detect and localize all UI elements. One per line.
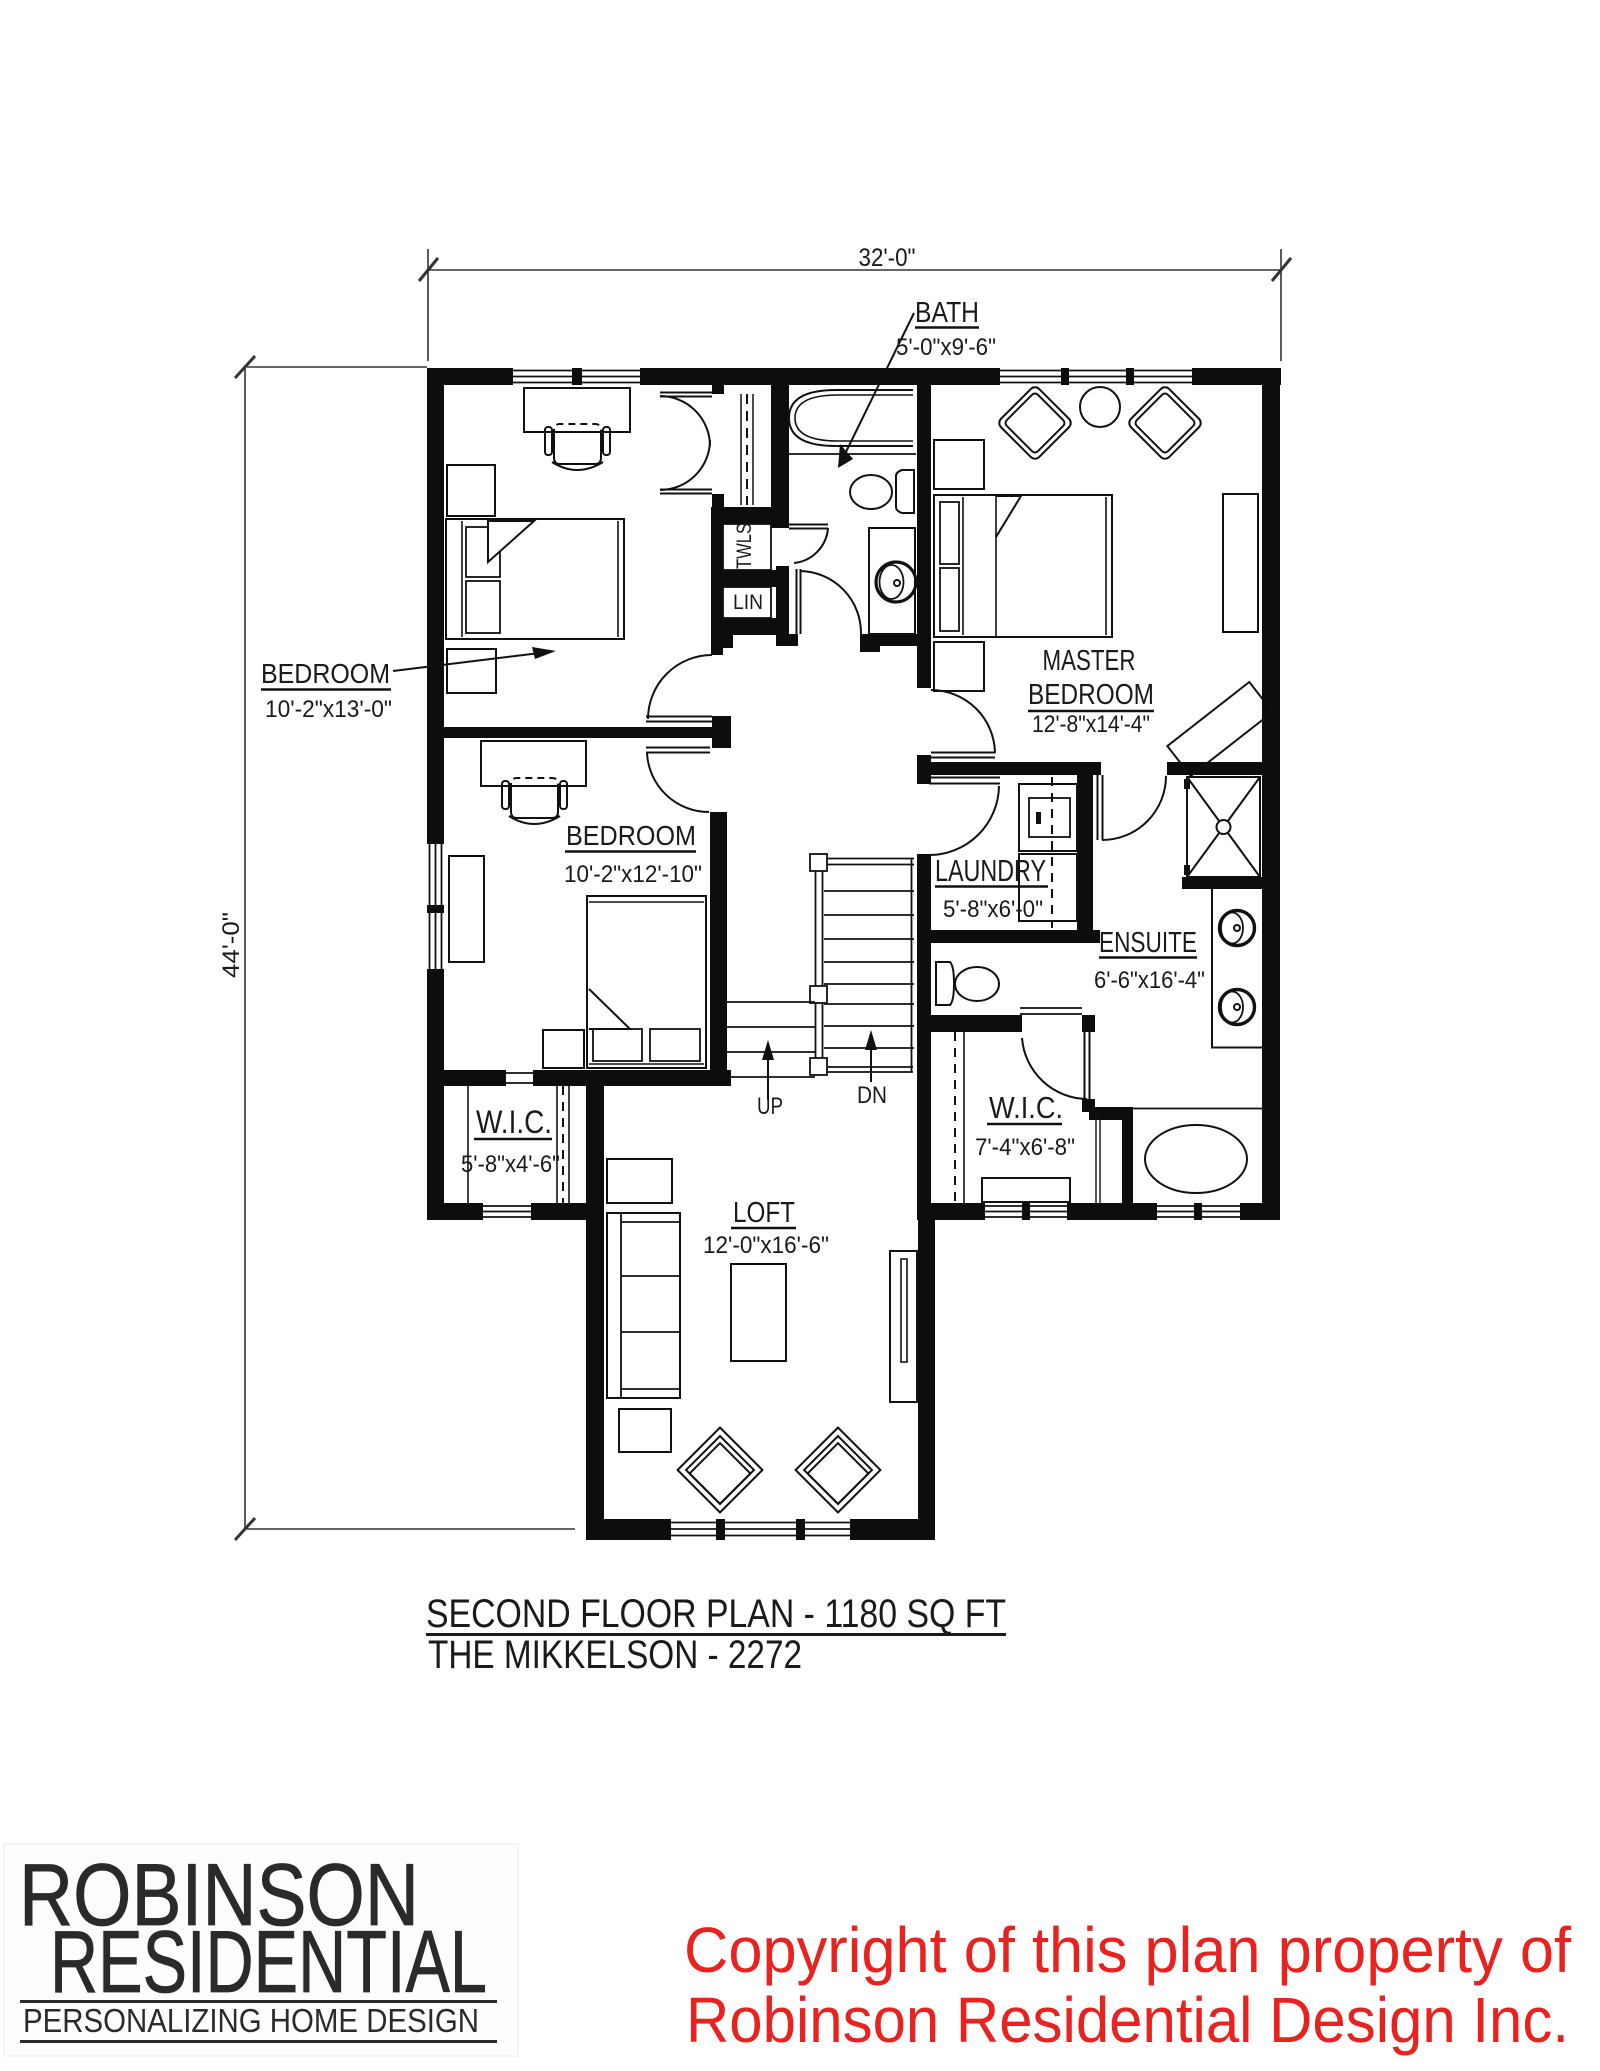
svg-text:BATH: BATH [915,297,979,329]
svg-text:PERSONALIZING HOME DESIGN: PERSONALIZING HOME DESIGN [23,2003,479,2040]
svg-text:TWLS: TWLS [733,523,756,569]
svg-text:W.I.C.: W.I.C. [476,1104,552,1140]
svg-text:BEDROOM: BEDROOM [261,658,390,689]
svg-text:5'-0"x9'-6": 5'-0"x9'-6" [896,334,996,361]
svg-text:SECOND FLOOR PLAN - 1180 SQ FT: SECOND FLOOR PLAN - 1180 SQ FT [426,1592,1006,1636]
svg-text:Copyright of this plan propert: Copyright of this plan property of [684,1914,1571,1986]
svg-text:12'-0"x16'-6": 12'-0"x16'-6" [703,1232,829,1259]
svg-text:12'-8"x14'-4": 12'-8"x14'-4" [1032,711,1150,738]
svg-text:W.I.C.: W.I.C. [989,1090,1063,1125]
svg-text:10'-2"x13'-0": 10'-2"x13'-0" [265,696,392,723]
svg-text:7'-4"x6'-8": 7'-4"x6'-8" [975,1134,1075,1161]
svg-text:5'-8"x4'-6": 5'-8"x4'-6" [461,1151,560,1178]
svg-text:BEDROOM: BEDROOM [1028,679,1154,711]
svg-text:LOFT: LOFT [733,1197,795,1229]
svg-text:BEDROOM: BEDROOM [566,820,696,851]
svg-text:10'-2"x12'-10": 10'-2"x12'-10" [564,861,702,888]
svg-text:LIN: LIN [733,591,763,614]
svg-text:DN: DN [857,1082,887,1109]
svg-text:LAUNDRY: LAUNDRY [935,853,1046,888]
svg-text:MASTER: MASTER [1043,645,1136,677]
svg-text:RESIDENTIAL: RESIDENTIAL [50,1912,487,2011]
svg-text:6'-6"x16'-4": 6'-6"x16'-4" [1094,967,1205,994]
svg-text:ENSUITE: ENSUITE [1099,927,1197,959]
svg-text:UP: UP [757,1093,783,1120]
svg-text:44'-0": 44'-0" [218,912,245,978]
svg-text:32'-0": 32'-0" [859,244,916,272]
svg-text:Robinson Residential Design In: Robinson Residential Design Inc. [686,1984,1569,2056]
svg-text:THE MIKKELSON - 2272: THE MIKKELSON - 2272 [428,1633,802,1677]
svg-text:5'-8"x6'-0": 5'-8"x6'-0" [943,896,1043,923]
